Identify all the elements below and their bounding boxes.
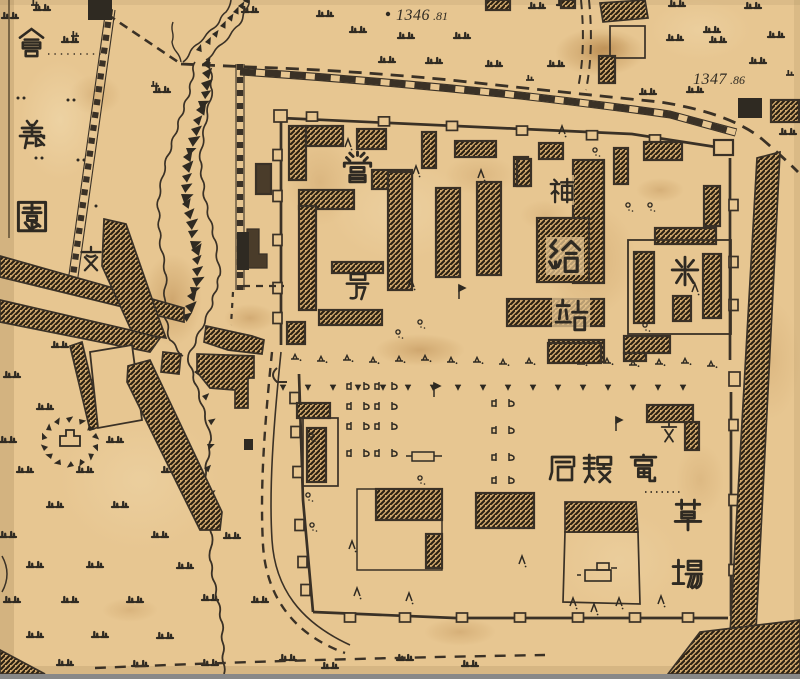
svg-text:1346: 1346 [396, 7, 430, 24]
svg-text:.86: .86 [730, 73, 745, 87]
svg-text:1347: 1347 [693, 71, 728, 88]
svg-text:.81: .81 [433, 9, 448, 23]
